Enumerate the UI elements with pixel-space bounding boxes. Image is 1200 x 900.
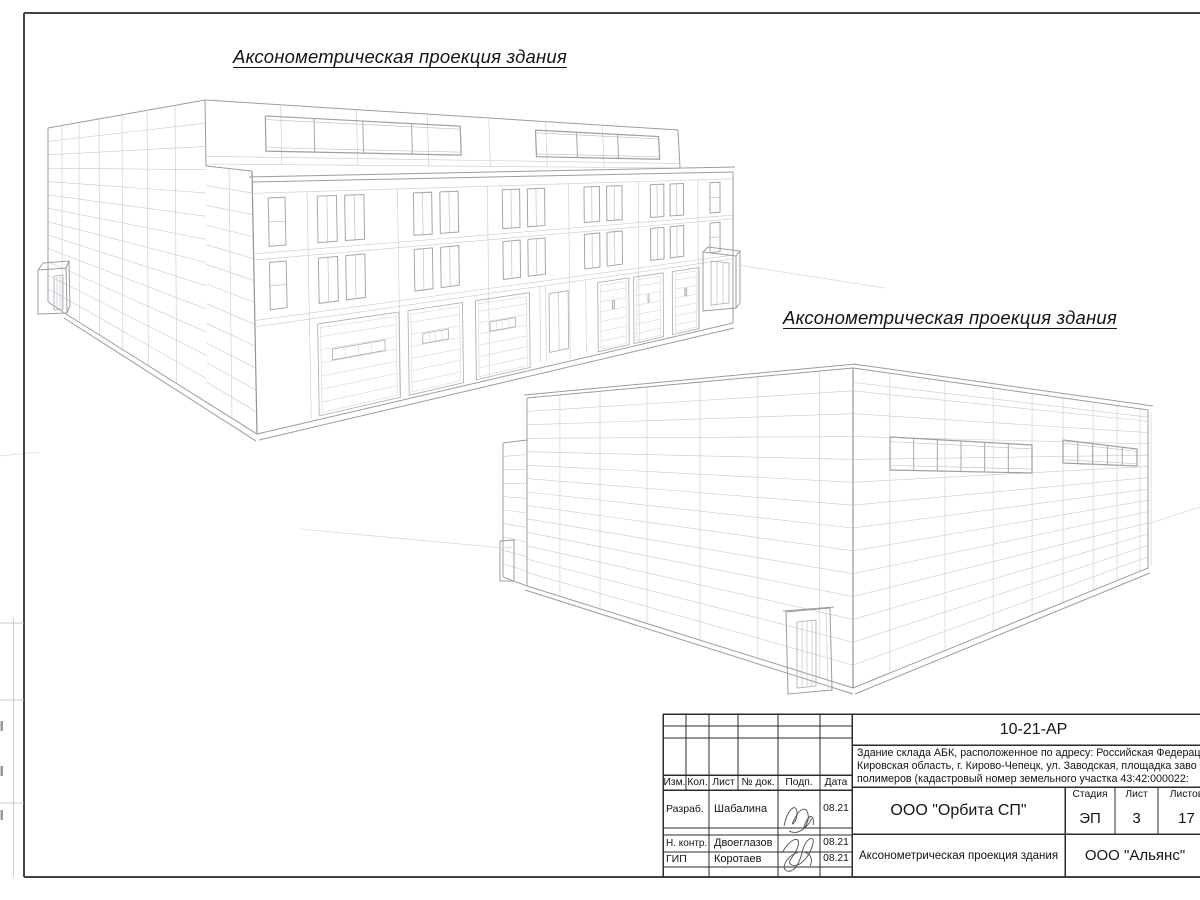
- signatures: [782, 808, 813, 872]
- stamp-doc-code: 10-21-АР: [852, 714, 1200, 745]
- stamp-col-data: Дата: [820, 775, 852, 790]
- drawing-sheet: Аксонометрическая проекция здания Аксоно…: [0, 0, 1200, 900]
- stamp-role-developer: Разраб.: [666, 790, 704, 828]
- stamp-sheet-label: Лист: [1115, 787, 1158, 803]
- stamp-stage-label: Стадия: [1065, 787, 1115, 803]
- stamp-col-list: Лист: [709, 775, 738, 790]
- stamp-org2: ООО "Альянс": [1065, 834, 1200, 878]
- stamp-sheets-value: 17: [1158, 803, 1200, 834]
- stamp-col-izm: Изм.: [663, 775, 686, 790]
- building-axon-1: [38, 100, 740, 441]
- stamp-col-doc: № док.: [738, 775, 778, 790]
- stamp-date-ncontrol: 08.21: [820, 834, 852, 851]
- stamp-name-gip: Коротаев: [714, 852, 762, 867]
- drawing1-title: Аксонометрическая проекция здания: [170, 46, 630, 68]
- stamp-description-line1: Здание склада АБК, расположенное по адре…: [857, 747, 1200, 760]
- stamp-date-gip: 08.21: [820, 851, 852, 866]
- stamp-name-developer: Шабалина: [714, 790, 767, 828]
- stamp-org: ООО "Орбита СП": [852, 787, 1065, 834]
- stamp-description-line3: полимеров (кадастровый номер земельного …: [857, 773, 1189, 786]
- stamp-col-podp: Подп.: [778, 775, 820, 790]
- stamp-date-developer: 08.21: [820, 790, 852, 828]
- margin-stamp: [0, 618, 24, 877]
- stamp-sheets-label: Листов: [1158, 787, 1200, 803]
- building-axon-2: [500, 364, 1153, 694]
- stamp-role-ncontrol: Н. контр.: [666, 835, 707, 852]
- stamp-description-line2: Кировская область, г. Кирово-Чепецк, ул.…: [857, 760, 1197, 773]
- drawing2-title: Аксонометрическая проекция здания: [720, 307, 1180, 329]
- stamp-sheet-value: 3: [1115, 803, 1158, 834]
- stamp-sheet-title: Аксонометрическая проекция здания: [852, 834, 1065, 878]
- stamp-name-ncontrol: Двоеглазов: [714, 835, 772, 852]
- stamp-role-gip: ГИП: [666, 852, 687, 867]
- stamp-stage-value: ЭП: [1065, 803, 1115, 834]
- stamp-col-kol: Кол.: [686, 775, 709, 790]
